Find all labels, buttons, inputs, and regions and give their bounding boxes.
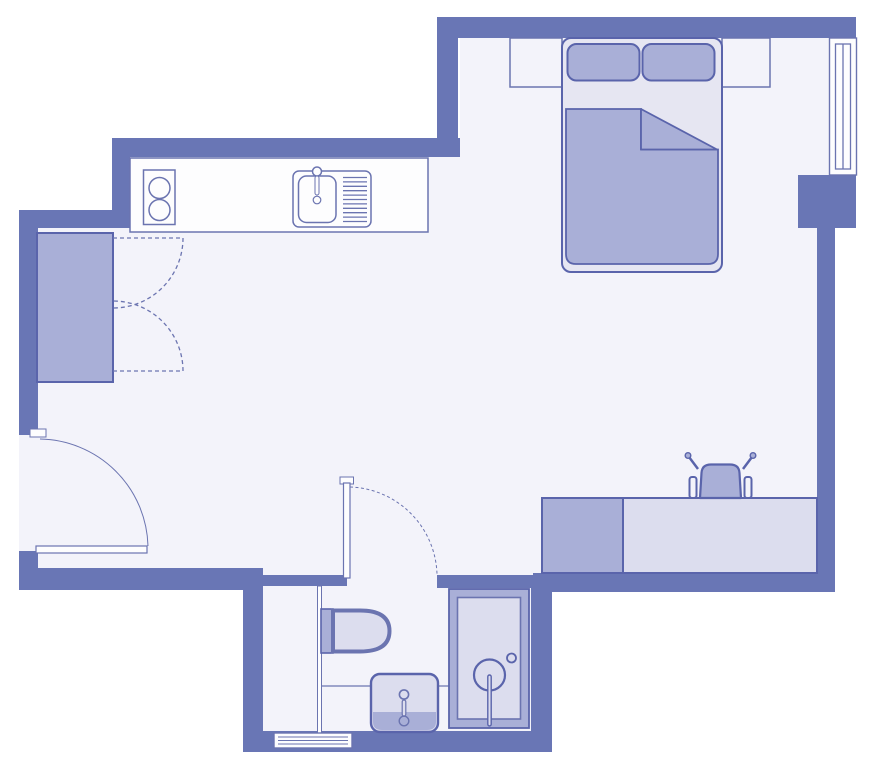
- wall-upper-left: [437, 17, 458, 157]
- desk: [623, 498, 817, 573]
- wall-bottom-right: [533, 573, 835, 592]
- pillow-right: [643, 44, 715, 81]
- toilet-bowl: [333, 611, 390, 652]
- bathroom-door-leaf: [344, 483, 351, 578]
- stove-icon: [144, 170, 176, 225]
- wall-left-stub: [19, 551, 38, 568]
- wall-top: [437, 17, 856, 38]
- cabinet: [542, 498, 623, 573]
- wall-bathroom-left: [243, 575, 263, 752]
- wall-bottom-left: [19, 568, 263, 590]
- chair-seat: [700, 465, 741, 499]
- floor-plan: [0, 0, 872, 768]
- wall-right: [817, 228, 835, 592]
- vent-grille-icon: [274, 733, 352, 748]
- wardrobe: [37, 233, 113, 382]
- nightstand-right: [722, 38, 770, 87]
- wall-bathroom-right: [531, 575, 552, 752]
- bathroom-partition: [318, 586, 322, 733]
- wall-kitchen: [112, 138, 460, 157]
- window-icon: [830, 38, 857, 175]
- wall-left-upper: [19, 210, 38, 435]
- washbasin-icon: [371, 674, 438, 732]
- toilet-icon: [321, 609, 390, 653]
- shower-icon: [449, 589, 529, 728]
- faucet-icon: [313, 167, 322, 176]
- floor-plan-drawing: [0, 0, 872, 768]
- kitchen: [130, 158, 428, 232]
- pillow-left: [568, 44, 640, 81]
- nightstand-left: [510, 38, 562, 87]
- wall-pier-right: [798, 175, 856, 228]
- wall-bathroom-top-right: [437, 575, 533, 588]
- kitchen-sink-icon: [293, 167, 371, 227]
- shower-hose: [488, 675, 491, 726]
- entry-door-leaf: [36, 546, 147, 553]
